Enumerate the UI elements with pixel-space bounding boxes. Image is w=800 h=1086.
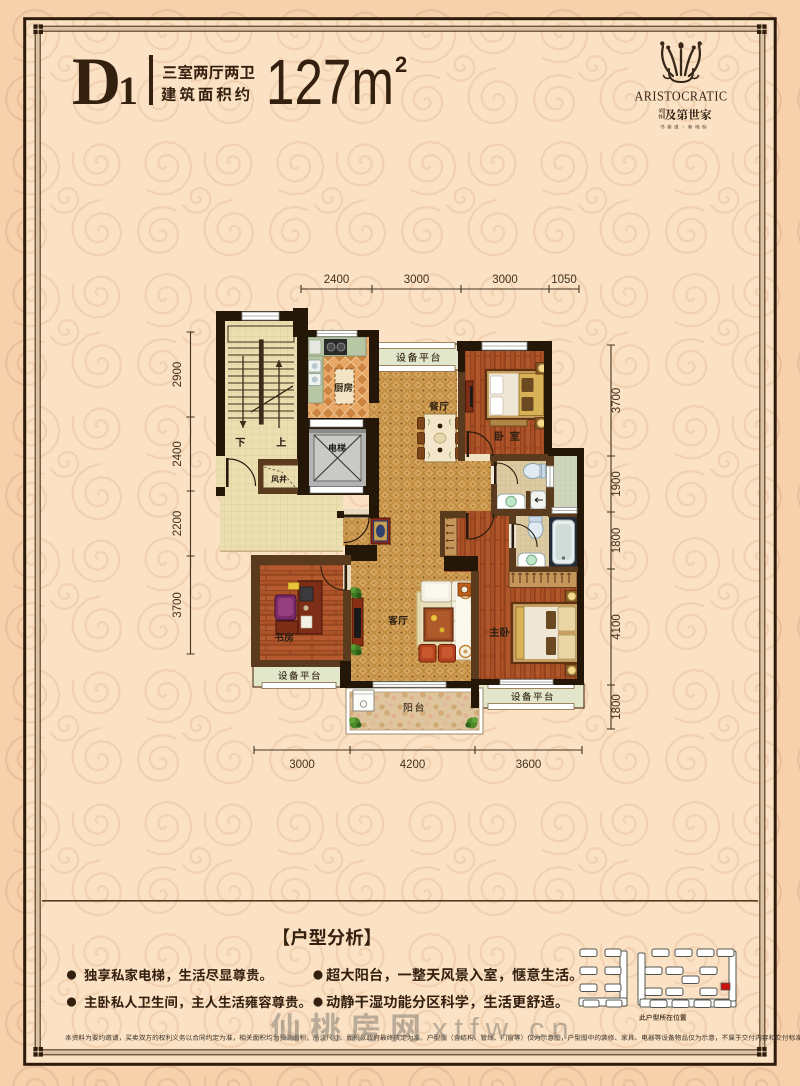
svg-text:1800: 1800 (611, 528, 623, 554)
svg-text:xtfw.cn: xtfw.cn (432, 1011, 576, 1046)
svg-text:3000: 3000 (492, 274, 518, 286)
svg-text:3000: 3000 (404, 274, 430, 286)
svg-text:127m: 127m (266, 46, 394, 118)
svg-text:D: D (72, 43, 121, 119)
svg-text:3700: 3700 (611, 388, 623, 414)
svg-text:2900: 2900 (172, 362, 184, 388)
svg-text:2200: 2200 (172, 511, 184, 537)
svg-text:4200: 4200 (400, 759, 426, 771)
svg-text:1: 1 (118, 68, 138, 113)
svg-text:1800: 1800 (611, 694, 623, 720)
svg-text:3700: 3700 (172, 592, 184, 618)
svg-text:1050: 1050 (551, 274, 577, 286)
svg-text:2: 2 (395, 52, 407, 77)
svg-text:3600: 3600 (516, 759, 542, 771)
svg-text:2400: 2400 (172, 441, 184, 467)
svg-text:ARISTOCRATIC: ARISTOCRATIC (635, 89, 728, 104)
svg-text:4100: 4100 (611, 614, 623, 640)
svg-text:3000: 3000 (289, 759, 315, 771)
svg-text:1900: 1900 (611, 471, 623, 497)
svg-text:2400: 2400 (324, 274, 350, 286)
